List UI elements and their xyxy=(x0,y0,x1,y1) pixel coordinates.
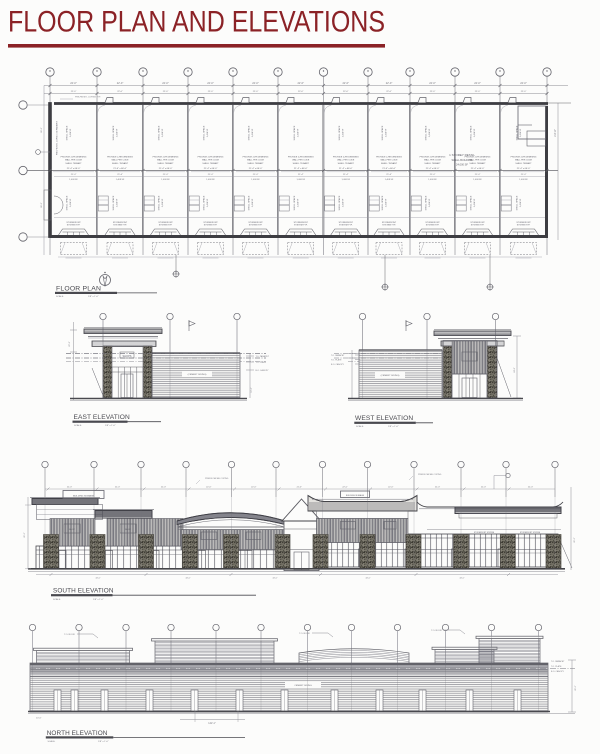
svg-text:WEST ELEVATION: WEST ELEVATION xyxy=(355,415,413,422)
svg-text:22'-0": 22'-0" xyxy=(207,81,214,85)
svg-text:SHELL TENANT: SHELL TENANT xyxy=(293,162,310,165)
svg-text:44'-0": 44'-0" xyxy=(459,578,464,580)
svg-text:22'-0": 22'-0" xyxy=(70,81,77,85)
svg-text:22'-0": 22'-0" xyxy=(297,81,304,85)
svg-text:WALL PER CODE: WALL PER CODE xyxy=(157,158,175,161)
svg-text:B.O. CANOPY: B.O. CANOPY xyxy=(331,363,345,366)
svg-text:STOREFRONT: STOREFRONT xyxy=(470,222,485,224)
svg-text:WALL PER CODE: WALL PER CODE xyxy=(337,158,355,161)
svg-text:22'-0": 22'-0" xyxy=(528,487,534,489)
svg-text:1,408 SF: 1,408 SF xyxy=(252,128,254,137)
svg-text:WALL PER CODE: WALL PER CODE xyxy=(381,158,399,161)
svg-text:STOREFRONT: STOREFRONT xyxy=(248,222,263,224)
svg-text:21'-4": 21'-4" xyxy=(386,174,392,176)
svg-text:22'-0": 22'-0" xyxy=(67,487,73,489)
svg-text:1,408 SF: 1,408 SF xyxy=(342,198,344,207)
svg-text:SHELL TENANT: SHELL TENANT xyxy=(515,162,532,165)
svg-text:21'-4" x 66'-0": 21'-4" x 66'-0" xyxy=(382,168,396,170)
svg-text:1,408 SF: 1,408 SF xyxy=(297,179,306,181)
svg-text:1/8" = 1'-0": 1/8" = 1'-0" xyxy=(98,741,109,743)
svg-text:WALL PER CODE: WALL PER CODE xyxy=(65,158,83,161)
svg-text:PREFIN. METAL COPING: PREFIN. METAL COPING xyxy=(418,473,442,476)
svg-text:SHELL SPACE: SHELL SPACE xyxy=(248,195,251,210)
svg-text:SHELL SPACE: SHELL SPACE xyxy=(338,125,341,140)
svg-text:1 STOREY RETAIL: 1 STOREY RETAIL xyxy=(449,153,475,157)
svg-text:PROVIDE 2-HR DEMISING: PROVIDE 2-HR DEMISING xyxy=(61,157,87,159)
svg-text:WALL PER CODE: WALL PER CODE xyxy=(292,158,310,161)
svg-text:STOREFRONT: STOREFRONT xyxy=(339,222,354,224)
svg-text:22'-0": 22'-0" xyxy=(386,91,392,93)
svg-text:22'-0": 22'-0" xyxy=(388,487,394,489)
svg-text:1,408 SF: 1,408 SF xyxy=(474,128,476,137)
svg-text:22'-0": 22'-0" xyxy=(253,91,259,93)
svg-text:STOREFRONT: STOREFRONT xyxy=(158,222,173,224)
svg-text:22'-0": 22'-0" xyxy=(252,81,259,85)
svg-text:21'-4": 21'-4" xyxy=(208,174,214,176)
svg-text:22'-0": 22'-0" xyxy=(481,487,487,489)
svg-text:SHOPS: SHOPS xyxy=(122,354,131,358)
svg-text:21'-4" x 66'-0": 21'-4" x 66'-0" xyxy=(113,168,127,170)
svg-text:20'-0": 20'-0" xyxy=(574,537,576,542)
svg-text:SHELL SPACE: SHELL SPACE xyxy=(293,125,296,140)
svg-text:SHELL TENANT: SHELL TENANT xyxy=(65,162,82,165)
svg-text:1,408 SF: 1,408 SF xyxy=(206,179,215,181)
svg-text:1,408 SF: 1,408 SF xyxy=(473,179,482,181)
svg-text:SHELL TENANT: SHELL TENANT xyxy=(424,162,441,165)
svg-text:22'-0": 22'-0" xyxy=(430,91,436,93)
svg-text:21'-4": 21'-4" xyxy=(117,174,123,176)
svg-text:STOREFRONT: STOREFRONT xyxy=(516,222,531,224)
svg-text:1,408 SF: 1,408 SF xyxy=(386,128,388,137)
svg-text:PROVIDE 2-HR DEMISING: PROVIDE 2-HR DEMISING xyxy=(511,157,537,159)
svg-text:SCALE:: SCALE: xyxy=(356,425,364,428)
svg-text:SHELL SPACE: SHELL SPACE xyxy=(425,195,428,210)
svg-text:21'-4": 21'-4" xyxy=(253,174,259,176)
svg-text:SHELL SPACE: SHELL SPACE xyxy=(203,195,206,210)
svg-text:21'-4": 21'-4" xyxy=(430,174,436,176)
svg-text:SHELL SPACE: SHELL SPACE xyxy=(516,195,519,210)
svg-text:22'-0": 22'-0" xyxy=(520,81,527,85)
svg-text:22'-0": 22'-0" xyxy=(297,487,303,489)
svg-text:PRE-FIN MTL COPING TYP.: PRE-FIN MTL COPING TYP. xyxy=(75,97,101,99)
svg-text:SHELL SPACE: SHELL SPACE xyxy=(470,125,473,140)
svg-text:T.O. PLATE: T.O. PLATE xyxy=(331,359,342,362)
svg-text:SHELL SPACE: SHELL SPACE xyxy=(66,125,69,140)
svg-text:22'-0": 22'-0" xyxy=(69,341,71,347)
svg-text:1/8" = 1'-0": 1/8" = 1'-0" xyxy=(93,599,104,601)
svg-text:22'-0": 22'-0" xyxy=(435,487,441,489)
svg-text:PROVIDE 2-HR DEMISING: PROVIDE 2-HR DEMISING xyxy=(333,157,359,159)
svg-text:1,408 SF: 1,408 SF xyxy=(342,179,351,181)
svg-text:(CEMENT SIDING): (CEMENT SIDING) xyxy=(188,374,207,376)
svg-text:SHELL SPACE: SHELL SPACE xyxy=(381,125,384,140)
svg-text:1,408 SF: 1,408 SF xyxy=(251,179,260,181)
svg-text:1,408 SF: 1,408 SF xyxy=(297,198,299,207)
svg-text:SHELL TENANT: SHELL TENANT xyxy=(202,162,219,165)
svg-text:22'-0": 22'-0" xyxy=(342,487,348,489)
svg-text:1,408 SF: 1,408 SF xyxy=(117,198,119,207)
svg-text:WALL PER CODE: WALL PER CODE xyxy=(515,158,533,161)
svg-text:24,000 SF: 24,000 SF xyxy=(456,163,468,167)
svg-text:22'-0": 22'-0" xyxy=(251,487,257,489)
svg-text:1,408 SF: 1,408 SF xyxy=(520,198,522,207)
svg-text:SHELL TENANT: SHELL TENANT xyxy=(469,162,486,165)
svg-text:SYSTEM TYP.: SYSTEM TYP. xyxy=(294,225,308,227)
svg-text:1,408 SF: 1,408 SF xyxy=(297,128,299,137)
svg-text:WALL PER CODE: WALL PER CODE xyxy=(424,158,442,161)
svg-text:21'-4": 21'-4" xyxy=(298,174,304,176)
svg-text:21'-4": 21'-4" xyxy=(71,174,77,176)
svg-text:FLOOR PLAN: FLOOR PLAN xyxy=(56,286,101,293)
svg-text:21'-4" x 66'-0": 21'-4" x 66'-0" xyxy=(294,168,308,170)
svg-text:SHOP: SHOP xyxy=(69,529,76,531)
svg-text:22'-0": 22'-0" xyxy=(429,81,436,85)
svg-text:22'-0": 22'-0" xyxy=(521,91,527,93)
svg-text:22'-0": 22'-0" xyxy=(71,91,77,93)
svg-text:21'-4": 21'-4" xyxy=(163,174,169,176)
svg-text:1,408 SF: 1,408 SF xyxy=(70,198,72,207)
svg-text:(CEMENT SIDING): (CEMENT SIDING) xyxy=(381,375,400,377)
svg-text:SHELL TENANT: SHELL TENANT xyxy=(157,162,174,165)
svg-text:21'-4": 21'-4" xyxy=(343,174,349,176)
svg-text:1,408 SF: 1,408 SF xyxy=(429,198,431,207)
svg-text:1,408 SF: 1,408 SF xyxy=(429,128,431,137)
svg-text:SHELL TENANT: SHELL TENANT xyxy=(112,162,129,165)
svg-text:SCALE:: SCALE: xyxy=(53,598,61,601)
svg-text:SHELL TENANT: SHELL TENANT xyxy=(338,162,355,165)
svg-text:1,408 SF: 1,408 SF xyxy=(116,179,125,181)
svg-text:SCALE:: SCALE: xyxy=(56,295,64,298)
svg-text:SYSTEM TYP.: SYSTEM TYP. xyxy=(471,225,485,227)
svg-text:WALL PER CODE: WALL PER CODE xyxy=(247,158,265,161)
svg-text:21'-4": 21'-4" xyxy=(521,174,527,176)
svg-text:T.O. PLATE: T.O. PLATE xyxy=(551,665,562,668)
svg-text:44'-0": 44'-0" xyxy=(95,578,100,580)
svg-text:SHELL SPACE: SHELL SPACE xyxy=(66,195,69,210)
svg-text:20'-0": 20'-0" xyxy=(24,532,26,537)
svg-text:PROVIDE 2-HR DEMISING: PROVIDE 2-HR DEMISING xyxy=(420,157,446,159)
svg-text:21'-4" x 66'-0": 21'-4" x 66'-0" xyxy=(159,168,173,170)
svg-text:SOUTH ELEVATION: SOUTH ELEVATION xyxy=(53,588,114,595)
svg-text:22'-0": 22'-0" xyxy=(161,487,167,489)
svg-text:44'-0": 44'-0" xyxy=(365,578,370,580)
svg-text:1,408 SF: 1,408 SF xyxy=(161,179,170,181)
svg-text:STOREFRONT SYSTEM: STOREFRONT SYSTEM xyxy=(474,532,495,534)
svg-text:SHELL BUILDING: SHELL BUILDING xyxy=(451,158,472,162)
svg-text:B.O. CANOPY: B.O. CANOPY xyxy=(256,369,270,372)
svg-text:T.O. ROOF: T.O. ROOF xyxy=(64,634,76,636)
svg-text:EAST ELEVATION: EAST ELEVATION xyxy=(74,414,131,421)
svg-text:SHELL SPACE: SHELL SPACE xyxy=(293,195,296,210)
svg-text:PROVIDE 2-HR DEMISING: PROVIDE 2-HR DEMISING xyxy=(376,157,402,159)
svg-text:SHELL SPACE: SHELL SPACE xyxy=(338,195,341,210)
svg-text:BUILDING SIGNAGE: BUILDING SIGNAGE xyxy=(73,494,94,497)
svg-text:SYSTEM TYP.: SYSTEM TYP. xyxy=(113,225,127,227)
svg-text:SHELL SPACE: SHELL SPACE xyxy=(112,125,115,140)
svg-text:SHELL SPACE: SHELL SPACE xyxy=(158,125,161,140)
svg-text:PROVIDE 2-HR DEMISING: PROVIDE 2-HR DEMISING xyxy=(153,157,179,159)
svg-text:1,408 SF: 1,408 SF xyxy=(69,179,78,181)
svg-text:WALL PER CODE: WALL PER CODE xyxy=(112,158,130,161)
svg-text:B.O. CANOPY: B.O. CANOPY xyxy=(551,670,565,673)
svg-text:SHELL SPACE: SHELL SPACE xyxy=(470,195,473,210)
svg-text:22'-0": 22'-0" xyxy=(206,487,212,489)
svg-text:21'-4" x 66'-0": 21'-4" x 66'-0" xyxy=(426,168,440,170)
svg-text:21'-4": 21'-4" xyxy=(475,174,481,176)
svg-text:22'-0": 22'-0" xyxy=(343,91,349,93)
svg-text:10'-0": 10'-0" xyxy=(36,718,42,720)
svg-text:22'-0": 22'-0" xyxy=(475,91,481,93)
svg-text:1,408 SF: 1,408 SF xyxy=(519,179,528,181)
svg-text:SCALE:: SCALE: xyxy=(74,424,82,427)
svg-text:SCALE:: SCALE: xyxy=(48,740,56,743)
svg-text:PREFIN. METAL COPING: PREFIN. METAL COPING xyxy=(205,477,229,480)
svg-text:1,408 SF: 1,408 SF xyxy=(520,128,522,137)
svg-text:1,408 SF: 1,408 SF xyxy=(385,179,394,181)
svg-text:CEMENT SIDING: CEMENT SIDING xyxy=(294,685,312,687)
svg-text:21'-4" x 66'-0": 21'-4" x 66'-0" xyxy=(249,168,263,170)
svg-text:STOREFRONT: STOREFRONT xyxy=(203,222,218,224)
svg-text:22'-0": 22'-0" xyxy=(342,81,349,85)
svg-text:1,408 SF: 1,408 SF xyxy=(428,179,437,181)
svg-text:SYSTEM TYP.: SYSTEM TYP. xyxy=(339,225,353,227)
svg-text:PROVIDE 2-HR DEMISING: PROVIDE 2-HR DEMISING xyxy=(107,157,133,159)
svg-text:SHELL SPACE: SHELL SPACE xyxy=(248,125,251,140)
svg-text:SYSTEM TYP.: SYSTEM TYP. xyxy=(426,225,440,227)
svg-text:PRE-FIN MTL COPING ON PARAPET: PRE-FIN MTL COPING ON PARAPET xyxy=(56,120,59,155)
svg-text:44'-0": 44'-0" xyxy=(272,578,277,580)
svg-text:22'-0": 22'-0" xyxy=(298,91,304,93)
svg-text:T.O. PARAPET: T.O. PARAPET xyxy=(551,660,565,663)
svg-text:STOREFRONT: STOREFRONT xyxy=(113,222,128,224)
svg-text:22'-0": 22'-0" xyxy=(115,487,121,489)
svg-text:22'-0": 22'-0" xyxy=(386,81,393,85)
svg-text:FLOOR PLAN AND ELEVATIONS: FLOOR PLAN AND ELEVATIONS xyxy=(8,6,385,39)
svg-text:SYSTEM TYP.: SYSTEM TYP. xyxy=(517,225,531,227)
svg-text:SHELL SPACE: SHELL SPACE xyxy=(112,195,115,210)
svg-text:21'-4" x 66'-0": 21'-4" x 66'-0" xyxy=(67,168,81,170)
svg-text:1,408 SF: 1,408 SF xyxy=(207,198,209,207)
svg-text:24'-0": 24'-0" xyxy=(514,367,516,373)
svg-text:T.O. ROOF: T.O. ROOF xyxy=(299,633,311,635)
svg-text:SHELL SPACE: SHELL SPACE xyxy=(425,125,428,140)
svg-text:66'-0": 66'-0" xyxy=(41,202,43,208)
svg-text:1,408 SF: 1,408 SF xyxy=(386,198,388,207)
svg-text:21'-4" x 66'-0": 21'-4" x 66'-0" xyxy=(339,168,353,170)
svg-text:PROVIDE 2-HR DEMISING: PROVIDE 2-HR DEMISING xyxy=(243,157,269,159)
svg-text:20'-0": 20'-0" xyxy=(575,685,577,690)
svg-text:21'-4" x 66'-0": 21'-4" x 66'-0" xyxy=(517,168,531,170)
svg-text:10'-0": 10'-0" xyxy=(251,387,253,392)
svg-text:1,408 SF: 1,408 SF xyxy=(342,128,344,137)
svg-text:44'-0": 44'-0" xyxy=(185,578,190,580)
svg-text:1,408 SF: 1,408 SF xyxy=(474,198,476,207)
svg-text:21'-4" x 66'-0": 21'-4" x 66'-0" xyxy=(471,168,485,170)
svg-text:WALL PER CODE: WALL PER CODE xyxy=(202,158,220,161)
svg-text:STOREFRONT: STOREFRONT xyxy=(382,222,397,224)
svg-text:1,408 SF: 1,408 SF xyxy=(117,128,119,137)
svg-text:BUILDING SIGNAGE: BUILDING SIGNAGE xyxy=(346,494,365,497)
svg-text:T.O. PLATE: T.O. PLATE xyxy=(256,361,267,364)
svg-text:PROVIDE 2-HR DEMISING: PROVIDE 2-HR DEMISING xyxy=(198,157,224,159)
svg-text:SHELL TENANT: SHELL TENANT xyxy=(381,162,398,165)
svg-text:SYSTEM TYP.: SYSTEM TYP. xyxy=(382,225,396,227)
svg-text:22'-0": 22'-0" xyxy=(474,81,481,85)
svg-text:1,408 SF: 1,408 SF xyxy=(207,128,209,137)
svg-text:SYSTEM TYP.: SYSTEM TYP. xyxy=(204,225,218,227)
svg-text:SYSTEM TYP.: SYSTEM TYP. xyxy=(67,225,81,227)
svg-text:SHELL TENANT: SHELL TENANT xyxy=(247,162,264,165)
svg-text:STOREFRONT: STOREFRONT xyxy=(294,222,309,224)
svg-text:142'-1": 142'-1" xyxy=(208,722,216,725)
svg-text:PROVIDE 2-HR DEMISING: PROVIDE 2-HR DEMISING xyxy=(288,157,314,159)
svg-text:STOREFRONT: STOREFRONT xyxy=(425,222,440,224)
svg-text:SHOP: SHOP xyxy=(125,529,132,531)
svg-text:1,408 SF: 1,408 SF xyxy=(162,198,164,207)
svg-text:22'-0": 22'-0" xyxy=(163,91,169,93)
svg-text:SYSTEM TYP.: SYSTEM TYP. xyxy=(159,225,173,227)
svg-text:214'-8": 214'-8" xyxy=(554,129,557,137)
svg-text:T.O. PARAPET: T.O. PARAPET xyxy=(331,354,345,357)
svg-text:T.O. ROOF: T.O. ROOF xyxy=(431,630,443,632)
svg-text:SHELL SPACE: SHELL SPACE xyxy=(158,195,161,210)
svg-text:1,408 SF: 1,408 SF xyxy=(162,128,164,137)
svg-text:SYSTEM TYP.: SYSTEM TYP. xyxy=(249,225,263,227)
svg-text:1/8" = 1'-0": 1/8" = 1'-0" xyxy=(388,426,399,428)
svg-text:SHELL SPACE: SHELL SPACE xyxy=(381,195,384,210)
svg-text:SHELL SPACE: SHELL SPACE xyxy=(203,125,206,140)
svg-text:22'-0": 22'-0" xyxy=(117,91,123,93)
svg-text:STOREFRONT: STOREFRONT xyxy=(66,222,81,224)
svg-text:1/8" = 1'-0": 1/8" = 1'-0" xyxy=(88,296,99,298)
svg-text:STOREFRONT SYSTEM: STOREFRONT SYSTEM xyxy=(520,532,541,534)
svg-text:22'-0": 22'-0" xyxy=(162,81,169,85)
svg-text:22'-0": 22'-0" xyxy=(208,91,214,93)
svg-text:21'-4" x 66'-0": 21'-4" x 66'-0" xyxy=(204,168,218,170)
svg-text:66'-0": 66'-0" xyxy=(41,127,43,133)
svg-text:1/8" = 1'-0": 1/8" = 1'-0" xyxy=(105,425,116,427)
svg-text:NORTH ELEVATION: NORTH ELEVATION xyxy=(47,730,108,737)
svg-text:22'-0": 22'-0" xyxy=(117,81,124,85)
svg-text:1,408 SF: 1,408 SF xyxy=(252,198,254,207)
svg-text:1,408 SF: 1,408 SF xyxy=(70,128,72,137)
svg-text:T.O. PARAPET: T.O. PARAPET xyxy=(256,355,270,358)
